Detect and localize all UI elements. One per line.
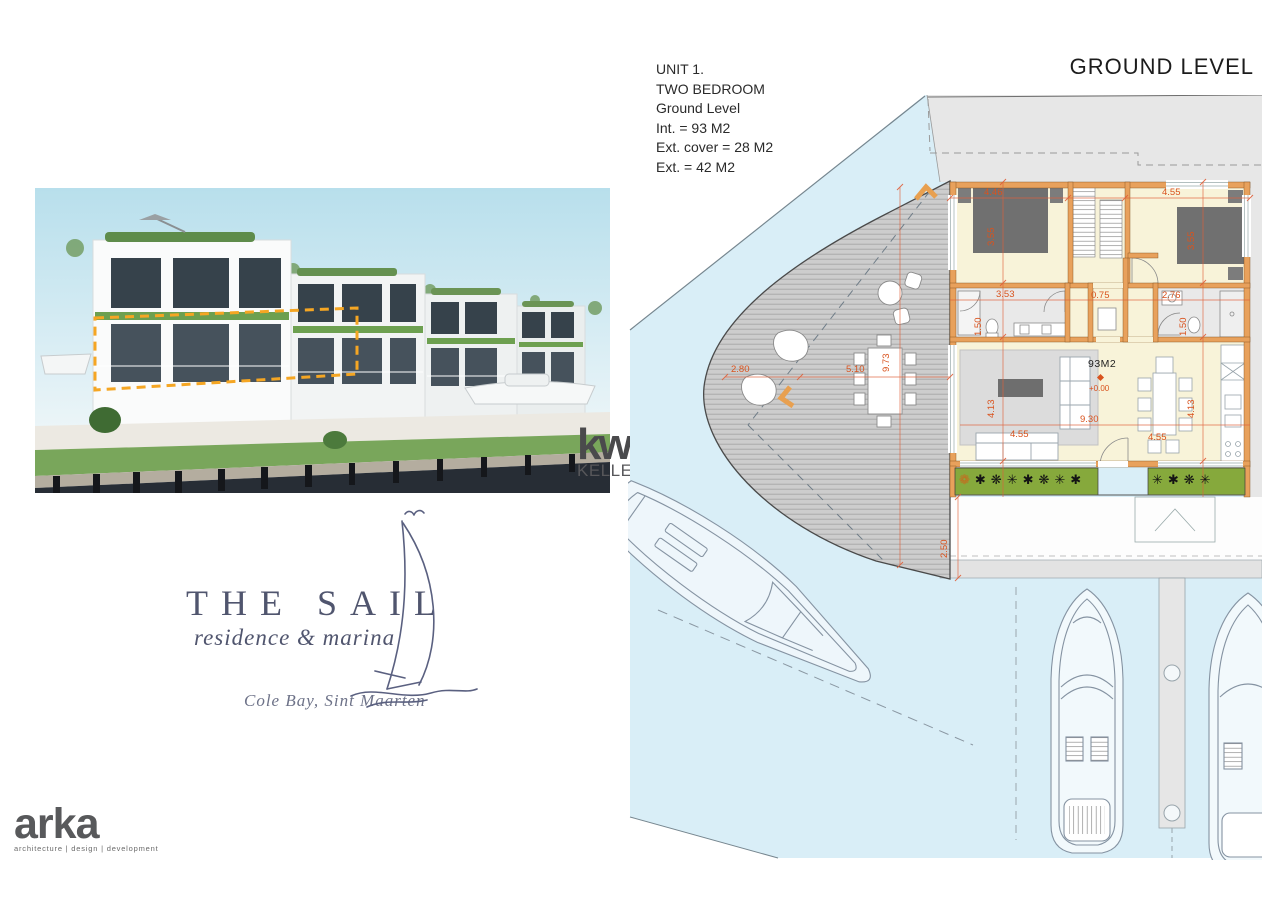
dim-bathroom2-width: 2.76	[1162, 290, 1181, 301]
dim-bedroom1-width: 4.46	[984, 187, 1003, 198]
floor-plan: 4.46 3.55 4.55 3.55 3.53 1.50 0.75 2.76 …	[628, 95, 1262, 860]
dim-bathroom1-width: 3.53	[996, 289, 1015, 300]
dim-bathroom2-depth: 1.50	[1178, 318, 1189, 337]
project-logo: THE SAIL residence & marina Cole Bay, Si…	[178, 505, 488, 720]
unit-level-label: +0.00	[1089, 384, 1109, 393]
plant-glyphs: ✳✱❋✳	[1152, 472, 1216, 487]
dim-hall-width: 0.75	[1091, 290, 1110, 301]
hall-cabinet	[1098, 308, 1116, 330]
dim-bedroom1-depth: 3.55	[986, 228, 997, 247]
sailboat-icon	[345, 505, 485, 710]
dim-living-depth: 4.13	[986, 400, 997, 419]
entry-steps	[1135, 497, 1215, 542]
dim-living-width: 9.30	[1080, 414, 1099, 425]
flower-glyph: ❁	[959, 472, 975, 487]
building-rendering-photo	[35, 188, 610, 493]
kw-mark: kw	[577, 428, 630, 462]
arka-logo: arka architecture | design | development	[14, 806, 158, 853]
bistro-table	[878, 281, 902, 305]
dim-quay-offset: 2.50	[939, 540, 950, 559]
motorboat	[1051, 589, 1123, 853]
foreground-tree	[89, 407, 121, 433]
dim-deck-inner: 5.10	[846, 364, 865, 375]
dim-bedroom2-width: 4.55	[1162, 187, 1181, 198]
arka-tagline: architecture | design | development	[14, 844, 158, 853]
dim-bedroom2-depth: 3.55	[1186, 232, 1197, 251]
unit-info-line: UNIT 1.	[656, 60, 773, 80]
rendering-scene	[35, 188, 610, 493]
dim-sofa-width: 4.55	[1010, 429, 1029, 440]
planter-right-plants: ✳✱❋✳	[1152, 472, 1242, 488]
page-title: GROUND LEVEL	[1070, 54, 1254, 80]
quay	[940, 560, 1262, 578]
planter-left-plants: ❁✱❋✳✱❋✳✱	[959, 472, 1095, 488]
plant-glyphs: ✱❋✳✱❋✳✱	[975, 472, 1086, 487]
presentation-page: GROUND LEVEL UNIT 1. TWO BEDROOM Ground …	[0, 0, 1280, 904]
foreground-shrub	[323, 431, 347, 449]
coffee-table	[998, 379, 1043, 397]
arka-name: arka	[14, 806, 158, 843]
dim-deck-depth: 9.73	[881, 354, 892, 373]
unit-area-label: 93M2	[1088, 358, 1116, 370]
dim-bathroom1-depth: 1.50	[973, 318, 984, 337]
dim-kitchen-width: 4.55	[1148, 432, 1167, 443]
dim-deck-outer: 2.80	[731, 364, 750, 375]
kitchen-island	[1153, 373, 1176, 435]
dim-kitchen-depth: 4.13	[1186, 400, 1197, 419]
pier	[1159, 578, 1185, 858]
